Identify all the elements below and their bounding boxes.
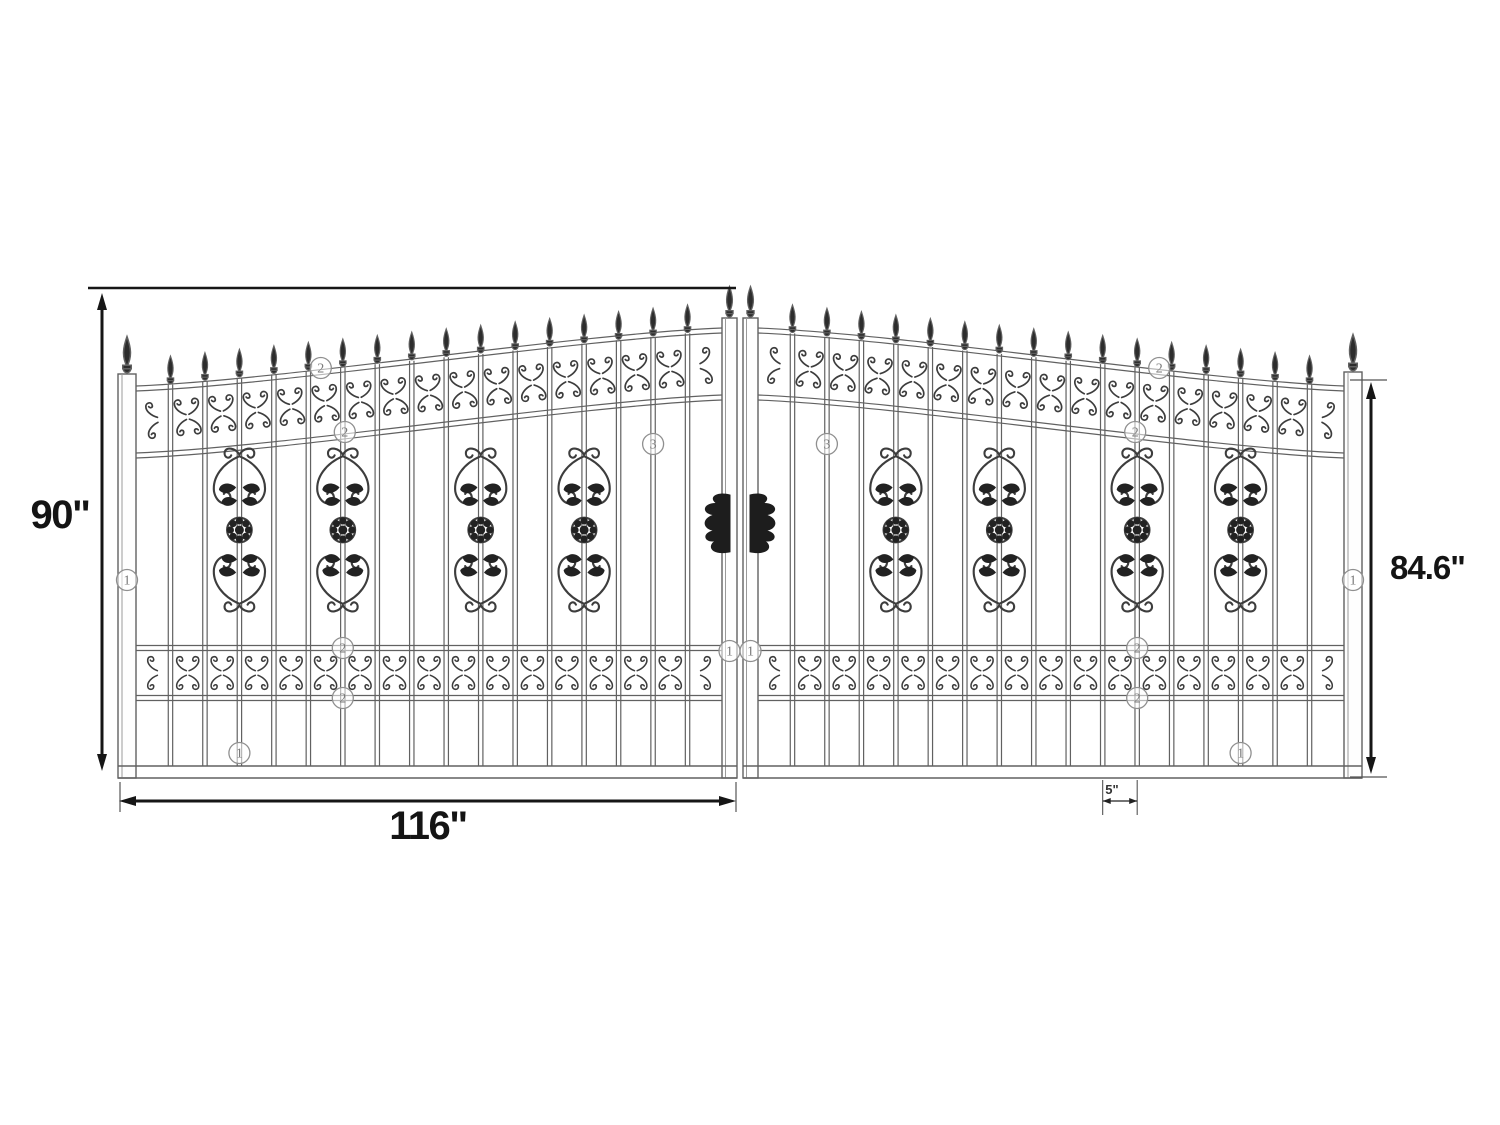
spear-finial (477, 325, 483, 353)
spear-finial (962, 322, 968, 350)
c-scroll-ornament (937, 657, 959, 690)
svg-text:3: 3 (650, 438, 657, 453)
c-scroll-ornament (1212, 657, 1234, 690)
svg-text:1: 1 (236, 747, 243, 762)
right-gate-leaf (743, 287, 1362, 779)
c-scroll-ornament (833, 657, 855, 690)
spear-finial (1203, 346, 1209, 374)
svg-text:2: 2 (1156, 362, 1163, 377)
spear-finial (789, 305, 795, 333)
callout-2: 2 (1149, 358, 1170, 379)
c-scroll-ornament (796, 350, 823, 388)
c-scroll-ornament (1003, 371, 1030, 409)
dimension-label-leaf-width: 116" (389, 804, 467, 848)
c-scroll-ornament (418, 657, 440, 690)
c-scroll-ornament (1143, 657, 1165, 690)
spear-finial (512, 322, 518, 350)
c-scroll-ornament (1323, 657, 1333, 690)
svg-text:2: 2 (1134, 692, 1141, 707)
svg-text:2: 2 (1132, 426, 1139, 441)
spear-finial (167, 356, 173, 384)
c-scroll-ornament (312, 384, 339, 422)
spear-finial (684, 305, 690, 333)
spear-finial (1349, 335, 1358, 371)
c-scroll-ornament (1109, 657, 1131, 690)
callout-2: 2 (1125, 422, 1146, 443)
dimension-label-picket-gap: 5" (1105, 782, 1118, 797)
spear-finial (271, 346, 277, 374)
spear-finial (1306, 356, 1312, 384)
spear-finial (202, 353, 208, 381)
spear-finial (340, 339, 346, 367)
c-scroll-ornament (590, 657, 612, 690)
callout-3: 3 (816, 434, 837, 455)
svg-text:1: 1 (1350, 574, 1357, 589)
scroll-medallion (1215, 449, 1266, 612)
c-scroll-ornament (701, 657, 711, 690)
spear-finial (581, 315, 587, 343)
gate-handle-right (750, 494, 776, 554)
spear-finial (747, 287, 754, 317)
c-scroll-ornament (381, 378, 408, 416)
c-scroll-ornament (556, 657, 578, 690)
c-scroll-ornament (1106, 381, 1133, 419)
c-scroll-ornament (1210, 391, 1237, 429)
c-scroll-ornament (830, 354, 857, 392)
c-scroll-ornament (174, 398, 201, 436)
c-scroll-ornament (1175, 388, 1202, 426)
c-scroll-ornament (280, 657, 302, 690)
gate-assembly (118, 287, 1362, 779)
c-scroll-ornament (349, 657, 371, 690)
c-scroll-ornament (315, 657, 337, 690)
c-scroll-ornament (1005, 657, 1027, 690)
scroll-medallion (1112, 449, 1163, 612)
spear-finial (824, 308, 830, 336)
c-scroll-ornament (1141, 384, 1168, 422)
c-scroll-ornament (277, 388, 304, 426)
spear-finial (409, 332, 415, 360)
scroll-medallion (455, 449, 506, 612)
top-band-ornaments (767, 347, 1334, 438)
scroll-medallion (974, 449, 1025, 612)
c-scroll-ornament (211, 657, 233, 690)
c-scroll-ornament (346, 381, 373, 419)
gate-handle-left (705, 494, 731, 554)
c-scroll-ornament (1279, 398, 1306, 436)
c-scroll-ornament (865, 357, 892, 395)
bottom-band-ornaments (148, 657, 711, 690)
svg-text:2: 2 (339, 692, 346, 707)
c-scroll-ornament (243, 391, 270, 429)
c-scroll-ornament (625, 657, 647, 690)
c-scroll-ornament (767, 347, 781, 383)
c-scroll-ornament (657, 350, 684, 388)
spear-finial (927, 319, 933, 347)
c-scroll-ornament (1037, 374, 1064, 412)
c-scroll-ornament (770, 657, 780, 690)
svg-text:2: 2 (1134, 642, 1141, 657)
svg-text:2: 2 (339, 642, 346, 657)
svg-text:3: 3 (823, 438, 830, 453)
left-gate-leaf (118, 287, 737, 779)
c-scroll-ornament (553, 360, 580, 398)
spear-finial (123, 337, 132, 373)
bottom-band-ornaments (770, 657, 1333, 690)
c-scroll-ornament (622, 354, 649, 392)
c-scroll-ornament (1072, 378, 1099, 416)
callout-3: 3 (643, 434, 664, 455)
callout-2: 2 (310, 358, 331, 379)
svg-text:2: 2 (341, 426, 348, 441)
c-scroll-ornament (1247, 657, 1269, 690)
callout-2: 2 (1127, 688, 1148, 709)
c-scroll-ornament (1178, 657, 1200, 690)
spear-finial (546, 319, 552, 347)
gate-dimension-diagram: 1111112222222233 90" 116" 84.6" 5" (0, 0, 1500, 1125)
callout-2: 2 (332, 638, 353, 659)
scroll-medallion (559, 449, 610, 612)
spear-finial (996, 325, 1002, 353)
spear-finial (726, 287, 733, 317)
spear-finial (443, 329, 449, 357)
c-scroll-ornament (899, 360, 926, 398)
gate-drawing-canvas: 1111112222222233 90" 116" 84.6" 5" (0, 0, 1500, 1125)
callout-1: 1 (719, 641, 740, 662)
c-scroll-ornament (415, 374, 442, 412)
dimension-label-overall-height: 90" (31, 493, 90, 537)
c-scroll-ornament (699, 347, 713, 383)
spear-finial (893, 315, 899, 343)
callout-2: 2 (1127, 638, 1148, 659)
spear-finial (858, 312, 864, 340)
callout-2: 2 (332, 688, 353, 709)
c-scroll-ornament (799, 657, 821, 690)
spear-finial (615, 312, 621, 340)
c-scroll-ornament (1244, 395, 1271, 433)
callout-1: 1 (1343, 570, 1364, 591)
spear-finial (1099, 336, 1105, 364)
spear-finial (1272, 353, 1278, 381)
c-scroll-ornament (519, 364, 546, 402)
c-scroll-ornament (1074, 657, 1096, 690)
dimension-label-outer-height: 84.6" (1390, 549, 1465, 586)
svg-text:1: 1 (124, 574, 131, 589)
callout-1: 1 (229, 743, 250, 764)
spear-finial (236, 349, 242, 377)
c-scroll-ornament (934, 364, 961, 402)
spear-finial (1134, 339, 1140, 367)
c-scroll-ornament (968, 367, 995, 405)
svg-text:2: 2 (317, 362, 324, 377)
c-scroll-ornament (868, 657, 890, 690)
svg-text:1: 1 (1237, 747, 1244, 762)
c-scroll-ornament (487, 657, 509, 690)
c-scroll-ornament (145, 402, 159, 438)
top-band-ornaments (145, 347, 712, 438)
c-scroll-ornament (452, 657, 474, 690)
spear-finial (1065, 332, 1071, 360)
c-scroll-ornament (383, 657, 405, 690)
c-scroll-ornament (1040, 657, 1062, 690)
scroll-medallion (214, 449, 265, 612)
callout-1: 1 (740, 641, 761, 662)
callout-2: 2 (334, 422, 355, 443)
scroll-medallion (317, 449, 368, 612)
c-scroll-ornament (246, 657, 268, 690)
spear-finial (1031, 329, 1037, 357)
c-scroll-ornament (484, 367, 511, 405)
c-scroll-ornament (177, 657, 199, 690)
c-scroll-ornament (148, 657, 158, 690)
c-scroll-ornament (902, 657, 924, 690)
svg-text:1: 1 (726, 645, 733, 660)
svg-text:1: 1 (747, 645, 754, 660)
callout-1: 1 (117, 570, 138, 591)
c-scroll-ornament (1321, 402, 1335, 438)
callout-1: 1 (1230, 743, 1251, 764)
c-scroll-ornament (208, 395, 235, 433)
scroll-medallion (870, 449, 921, 612)
c-scroll-ornament (659, 657, 681, 690)
c-scroll-ornament (588, 357, 615, 395)
spear-finial (650, 308, 656, 336)
c-scroll-ornament (1281, 657, 1303, 690)
c-scroll-ornament (521, 657, 543, 690)
spear-finial (374, 336, 380, 364)
c-scroll-ornament (971, 657, 993, 690)
c-scroll-ornament (450, 371, 477, 409)
spear-finial (1237, 349, 1243, 377)
